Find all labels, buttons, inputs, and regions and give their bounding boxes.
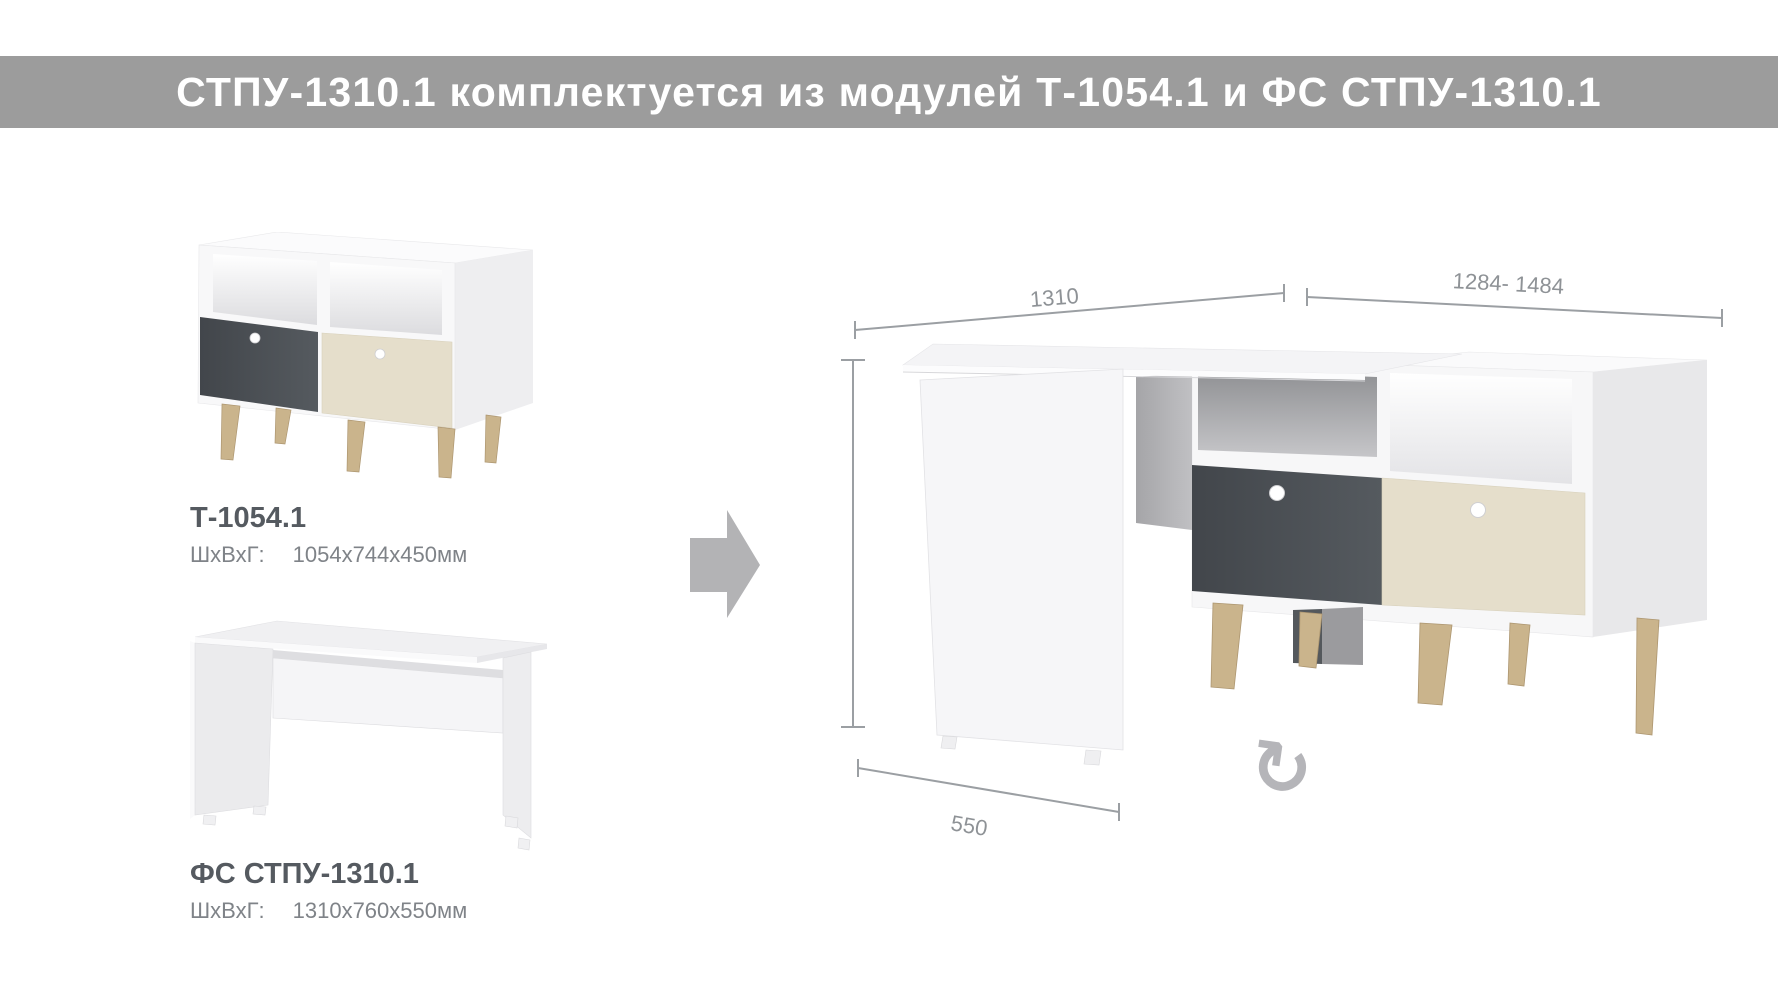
cabinet-carcass <box>198 232 533 430</box>
leg <box>438 427 455 478</box>
dims-value: 1054х744х450мм <box>293 542 468 567</box>
module-1-dimensions: ШхВхГ:1054х744х450мм <box>190 542 467 568</box>
dim-label-1310: 1310 <box>1029 283 1080 312</box>
module-1-title: Т-1054.1 <box>190 502 306 535</box>
rotate-clockwise-icon: ↻ <box>1245 723 1318 814</box>
leg <box>347 420 365 472</box>
catalog-page: СТПУ-1310.1 комплектуется из модулей Т-1… <box>0 0 1778 1000</box>
leg <box>1636 618 1659 735</box>
assembled-cabinet <box>1192 352 1707 637</box>
open-shelf-left-shadowed <box>1198 370 1377 457</box>
foot <box>203 815 216 825</box>
leg <box>485 415 501 463</box>
module-2-image <box>175 598 565 853</box>
dims-label: ШхВхГ: <box>190 898 265 923</box>
open-shelf-right <box>330 262 442 335</box>
leg <box>1418 623 1452 705</box>
desk-rear-support-side <box>1322 607 1363 665</box>
banner-title: СТПУ-1310.1 комплектуется из модулей Т-1… <box>176 69 1602 116</box>
combine-arrow-icon <box>690 508 762 620</box>
dim-label-550: 550 <box>949 810 989 841</box>
module-2-title: ФС СТПУ-1310.1 <box>190 858 419 891</box>
drawer-dark <box>1192 465 1382 605</box>
drawer-beige <box>322 333 452 428</box>
cabinet-side-face <box>1593 360 1707 637</box>
dims-label: ШхВхГ: <box>190 542 265 567</box>
leg <box>1508 623 1530 686</box>
desk-right-panel <box>503 652 531 838</box>
assembled-view: 1310 1284- 1484 550 ↻ <box>830 265 1750 845</box>
module-2-dimensions: ШхВхГ:1310х760х550мм <box>190 898 467 924</box>
drawer-knob <box>1270 486 1285 501</box>
foot <box>505 816 518 828</box>
leg <box>1211 603 1243 689</box>
foot <box>941 736 957 749</box>
module-1-image <box>180 232 540 490</box>
open-shelf-right <box>1390 373 1572 484</box>
right-arrow-shape <box>690 510 760 618</box>
drawer-knob <box>375 349 385 359</box>
dim-line-1284-1484 <box>1307 297 1722 318</box>
dims-value: 1310х760х550мм <box>293 898 468 923</box>
dim-line-550 <box>858 768 1119 812</box>
desk-body <box>190 621 547 838</box>
leg <box>221 404 240 460</box>
banner: СТПУ-1310.1 комплектуется из модулей Т-1… <box>0 56 1778 128</box>
foot <box>518 838 530 850</box>
drawer-beige <box>1382 478 1585 615</box>
drawer-knob <box>250 333 260 343</box>
desk-left-panel-edge <box>190 641 195 819</box>
cabinet-side-face <box>455 250 533 430</box>
dim-label-1284-1484: 1284- 1484 <box>1452 268 1564 299</box>
drawer-knob <box>1471 503 1486 518</box>
desk-left-panel <box>195 643 273 815</box>
desk-side-panel <box>920 369 1123 750</box>
leg <box>275 408 291 444</box>
foot <box>253 806 266 815</box>
desk-feet <box>203 806 530 850</box>
desk-inner-shadow <box>1136 373 1192 530</box>
foot <box>1084 750 1101 765</box>
